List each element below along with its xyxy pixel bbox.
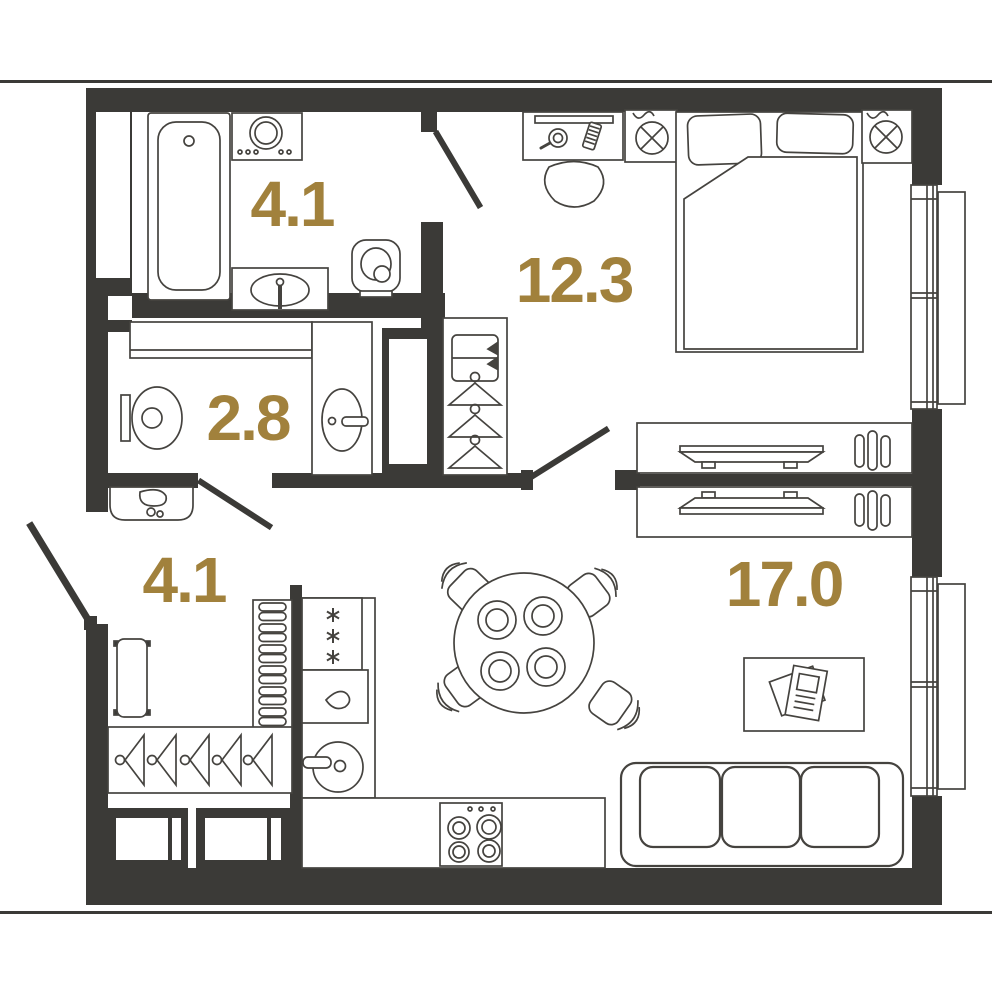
desk-icon xyxy=(523,112,623,160)
nightstand-lamp xyxy=(862,110,912,163)
window-icon xyxy=(911,577,965,796)
window-icon xyxy=(911,185,965,409)
shelf-box-icon xyxy=(452,335,498,381)
sofa-icon xyxy=(621,763,903,866)
bath-door-leaf-icon xyxy=(437,134,479,205)
bed-icon xyxy=(676,112,863,352)
wardrobe xyxy=(443,318,507,475)
floor-plan-svg xyxy=(0,0,992,992)
hob-icon xyxy=(440,803,502,866)
cabinet-icon xyxy=(108,808,292,870)
fridge-icon xyxy=(302,598,362,670)
entrance-door-leaf-icon xyxy=(31,526,87,618)
tv-stand-icon xyxy=(637,487,912,537)
bedroom-door-leaf-icon xyxy=(528,430,606,479)
duct-shaft-icon xyxy=(389,339,427,464)
wc-door-leaf-icon xyxy=(201,482,269,526)
sink-cabinet xyxy=(302,670,368,723)
pillow-icon xyxy=(776,113,853,154)
room-label-bedroom: 12.3 xyxy=(499,248,649,312)
blanket-icon xyxy=(684,157,857,349)
desk-chair-icon xyxy=(545,162,604,208)
monitor-icon xyxy=(535,116,613,123)
wall-lamp-icon xyxy=(870,121,902,153)
nightstand-lamp xyxy=(625,110,677,162)
floor-plan: 4.1 12.3 2.8 4.1 17.0 xyxy=(0,0,992,992)
washbasin-icon xyxy=(232,268,328,310)
room-label-toilet: 2.8 xyxy=(173,386,323,450)
wall-lamp-icon xyxy=(636,122,668,154)
room-label-hallway: 4.1 xyxy=(109,548,259,612)
washing-machine-icon xyxy=(232,113,302,160)
room-label-living-kitchen: 17.0 xyxy=(709,552,859,616)
dining-table-icon xyxy=(454,573,594,713)
bench-icon xyxy=(114,639,150,717)
coffee-table-icon xyxy=(744,658,864,731)
room-label-bathroom: 4.1 xyxy=(217,172,367,236)
toilet-icon xyxy=(352,240,400,297)
tv-stand-icon xyxy=(637,423,912,473)
pouf-icon xyxy=(110,487,193,520)
coat-rack xyxy=(108,727,292,793)
shoe-rack-icon xyxy=(253,600,292,728)
